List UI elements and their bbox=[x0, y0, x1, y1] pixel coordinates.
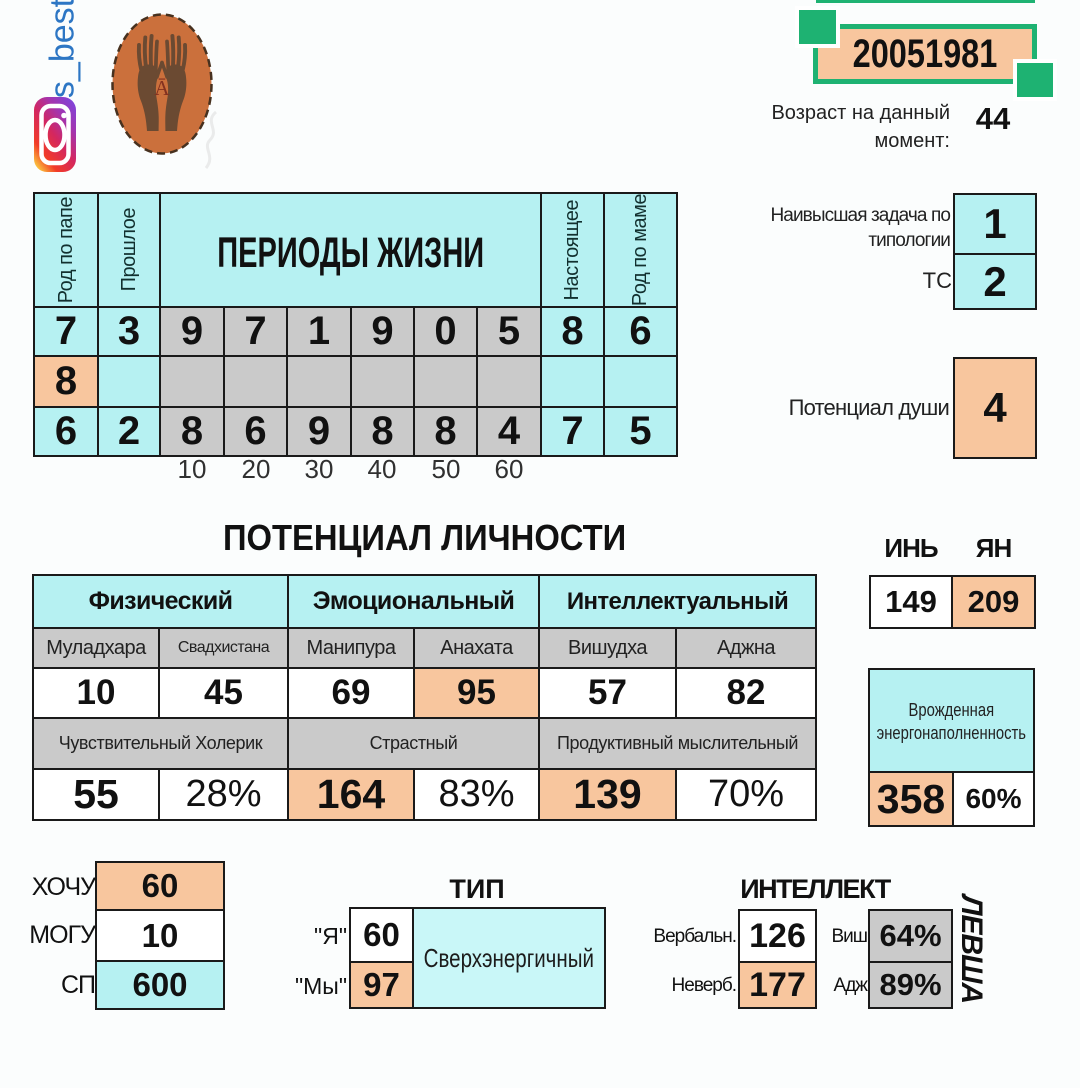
svg-text:Ā: Ā bbox=[154, 76, 170, 100]
